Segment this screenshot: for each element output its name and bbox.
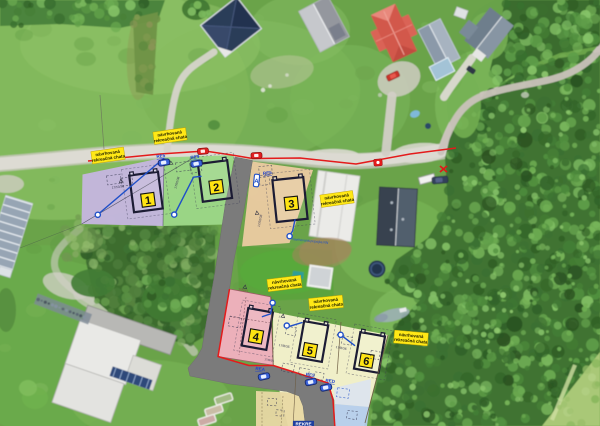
svg-text:3: 3 — [288, 198, 295, 211]
svg-text:REKRE: REKRE — [295, 421, 311, 426]
svg-text:RE5: RE5 — [263, 170, 273, 176]
